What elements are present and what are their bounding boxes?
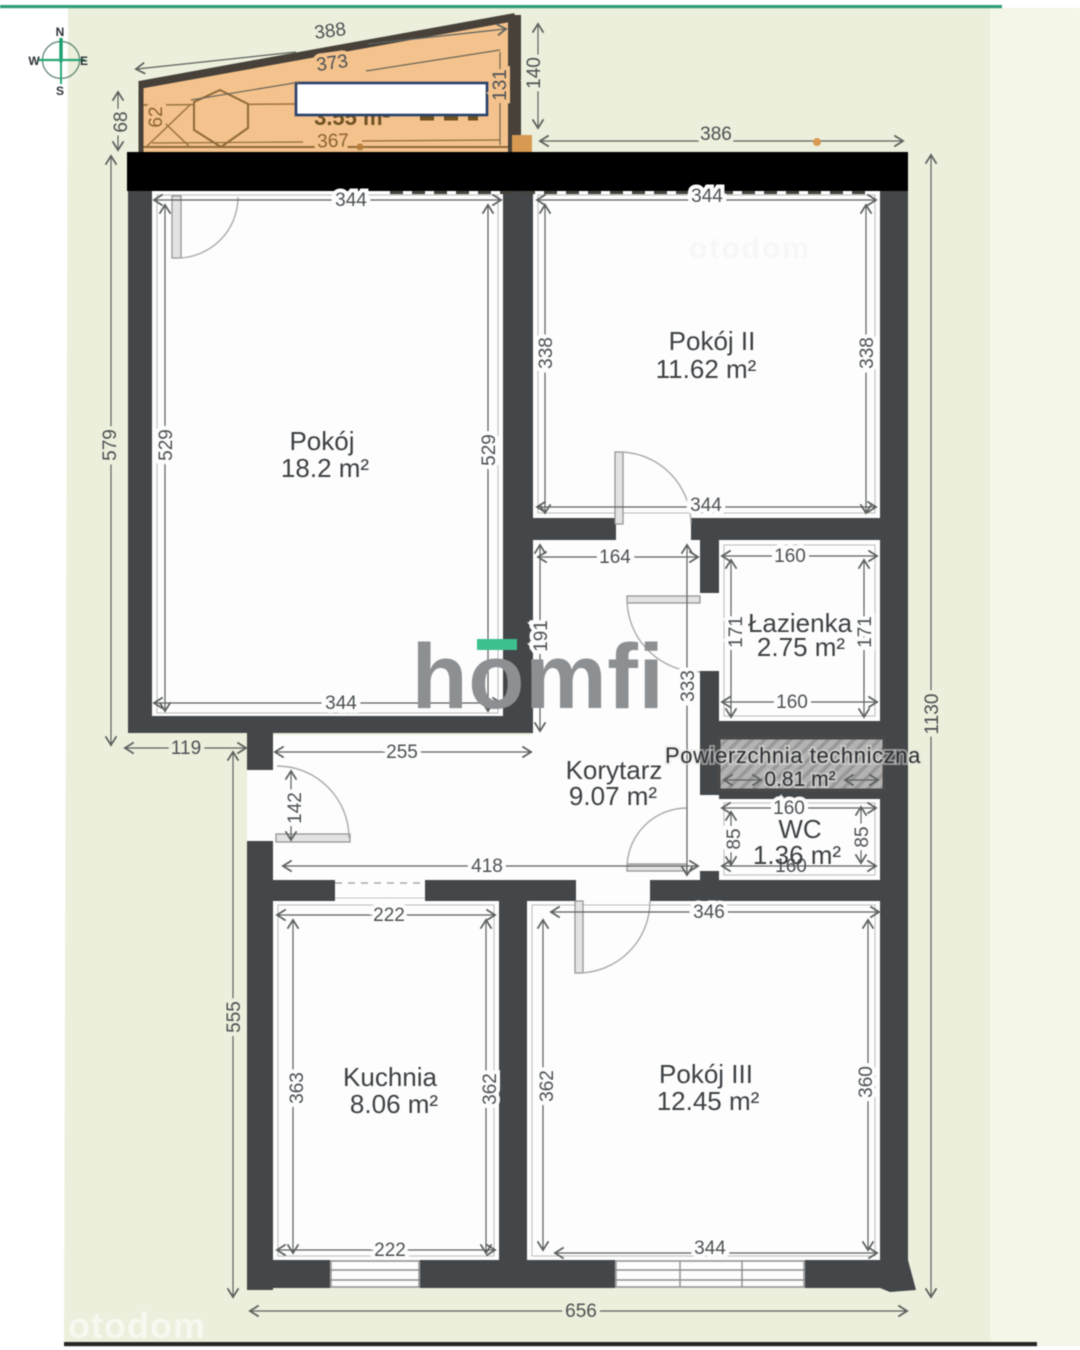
svg-text:85: 85 — [724, 828, 745, 849]
svg-text:1130: 1130 — [922, 694, 943, 735]
svg-text:386: 386 — [700, 124, 732, 145]
svg-text:373: 373 — [315, 51, 349, 76]
svg-text:529: 529 — [156, 429, 177, 461]
svg-text:homfi: homfi — [412, 626, 665, 728]
svg-text:12.45 m²: 12.45 m² — [657, 1086, 760, 1116]
svg-text:344: 344 — [691, 186, 723, 207]
svg-text:S: S — [56, 84, 64, 98]
svg-text:344: 344 — [335, 190, 367, 211]
svg-text:388: 388 — [313, 19, 347, 44]
svg-text:18.2 m²: 18.2 m² — [281, 453, 369, 483]
svg-text:344: 344 — [325, 693, 357, 714]
svg-text:333: 333 — [678, 670, 699, 702]
svg-text:85: 85 — [852, 826, 873, 847]
svg-text:62: 62 — [146, 106, 167, 127]
svg-text:2.75 m²: 2.75 m² — [757, 632, 845, 662]
svg-text:Pokój II: Pokój II — [669, 326, 756, 356]
svg-text:otodom: otodom — [689, 232, 811, 265]
svg-text:255: 255 — [386, 742, 418, 763]
svg-text:529: 529 — [479, 434, 500, 466]
svg-text:119: 119 — [171, 738, 201, 759]
svg-text:360: 360 — [856, 1066, 877, 1098]
svg-text:Powierzchnia techniczna: Powierzchnia techniczna — [665, 743, 921, 768]
svg-text:9.07 m²: 9.07 m² — [569, 781, 657, 811]
svg-text:346: 346 — [693, 902, 725, 923]
svg-text:N: N — [56, 25, 65, 39]
svg-text:362: 362 — [480, 1073, 501, 1105]
svg-text:164: 164 — [599, 547, 631, 568]
svg-text:11.62 m²: 11.62 m² — [656, 354, 757, 384]
svg-text:656: 656 — [565, 1301, 597, 1322]
svg-text:1.36 m²: 1.36 m² — [753, 840, 841, 870]
svg-text:363: 363 — [287, 1072, 308, 1104]
svg-text:otodom: otodom — [68, 1305, 206, 1346]
svg-text:171: 171 — [726, 616, 747, 648]
svg-text:222: 222 — [373, 905, 405, 926]
svg-text:160: 160 — [774, 546, 806, 567]
svg-text:418: 418 — [471, 856, 503, 877]
svg-text:W: W — [28, 54, 40, 68]
svg-text:367: 367 — [317, 130, 349, 152]
svg-text:Pokój III: Pokój III — [659, 1059, 753, 1089]
svg-text:131: 131 — [490, 69, 511, 101]
svg-text:171: 171 — [855, 616, 876, 648]
svg-text:Kuchnia: Kuchnia — [343, 1062, 437, 1092]
svg-text:579: 579 — [100, 429, 121, 461]
svg-text:555: 555 — [224, 1001, 245, 1033]
svg-text:8.06 m²: 8.06 m² — [350, 1089, 438, 1119]
svg-text:E: E — [80, 54, 88, 68]
svg-text:0.81 m²: 0.81 m² — [764, 768, 835, 791]
svg-text:338: 338 — [536, 337, 557, 369]
svg-text:222: 222 — [374, 1240, 406, 1261]
svg-text:344: 344 — [690, 495, 722, 516]
svg-text:344: 344 — [694, 1238, 726, 1259]
svg-text:142: 142 — [285, 792, 306, 824]
svg-text:Pokój: Pokój — [289, 426, 354, 456]
svg-text:338: 338 — [857, 337, 878, 369]
svg-text:362: 362 — [537, 1070, 558, 1102]
svg-text:160: 160 — [776, 692, 808, 713]
svg-text:68: 68 — [111, 111, 132, 132]
svg-text:140: 140 — [524, 57, 545, 89]
